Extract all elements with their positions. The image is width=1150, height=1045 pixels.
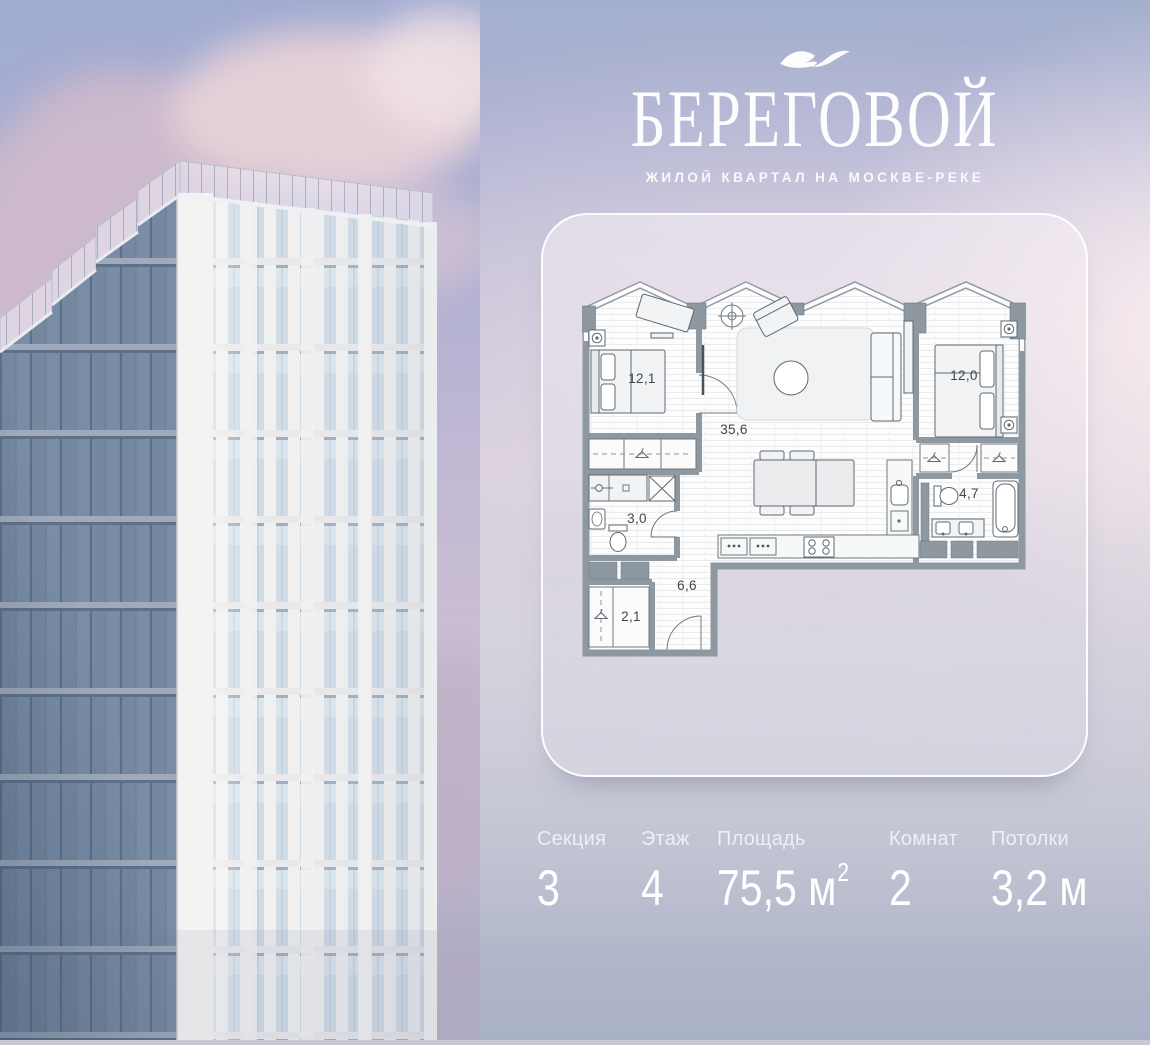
info-panel: БЕРЕГОВОЙ ЖИЛОЙ КВАРТАЛ НА МОСКВЕ-РЕКЕ xyxy=(480,0,1150,1040)
stat-value: 2 xyxy=(889,859,947,917)
square-sup: 2 xyxy=(837,857,849,887)
bathtub xyxy=(993,481,1018,537)
building-photo-svg xyxy=(0,0,480,1040)
floor-plan-card: 12,1 xyxy=(541,213,1088,777)
seagull-icon xyxy=(778,42,852,74)
brand-title: БЕРЕГОВОЙ xyxy=(631,76,999,161)
stat-value: 3,2 м xyxy=(991,859,1088,917)
stat-ceiling: Потолки 3,2 м xyxy=(991,827,1109,917)
room-area-label: 12,1 xyxy=(628,371,655,386)
stat-label: Площадь xyxy=(717,827,806,851)
tower xyxy=(0,161,437,1040)
building-photo xyxy=(0,0,480,1040)
sofa xyxy=(871,333,901,421)
stat-value: 4 xyxy=(641,859,682,917)
room-bathroom-1: 4,7 xyxy=(920,481,1018,558)
room-area-label: 12,0 xyxy=(950,368,977,383)
room-area-label: 35,6 xyxy=(720,422,747,437)
stat-value: 75,5 м2 xyxy=(717,859,849,917)
stat-label: Секция xyxy=(537,827,606,851)
stat-section: Секция 3 xyxy=(537,827,608,917)
brand-block: БЕРЕГОВОЙ ЖИЛОЙ КВАРТАЛ НА МОСКВЕ-РЕКЕ xyxy=(480,42,1150,185)
stat-value: 3 xyxy=(537,859,595,917)
wardrobe-band-left xyxy=(589,439,696,469)
washing-machine xyxy=(649,476,675,501)
stat-rooms: Комнат 2 xyxy=(889,827,960,917)
stat-label: Комнат xyxy=(889,827,958,851)
stat-label: Этаж xyxy=(641,827,690,851)
apartment-stats: Секция 3 Этаж 4 Площадь 75,5 м2 Комнат 2… xyxy=(537,827,1127,937)
room-area-label: 2,1 xyxy=(621,609,641,624)
stat-area: Площадь 75,5 м2 xyxy=(717,827,878,917)
stat-label: Потолки xyxy=(991,827,1069,851)
room-area-label: 3,0 xyxy=(627,511,647,526)
corner-pier xyxy=(177,193,213,1040)
stat-floor: Этаж 4 xyxy=(641,827,691,917)
room-area-label: 6,6 xyxy=(677,578,697,593)
floor-plan: 12,1 xyxy=(579,273,1049,668)
dining-table xyxy=(754,451,854,515)
room-area-label: 4,7 xyxy=(959,486,979,501)
brand-subtitle: ЖИЛОЙ КВАРТАЛ НА МОСКВЕ-РЕКЕ xyxy=(480,170,1150,185)
